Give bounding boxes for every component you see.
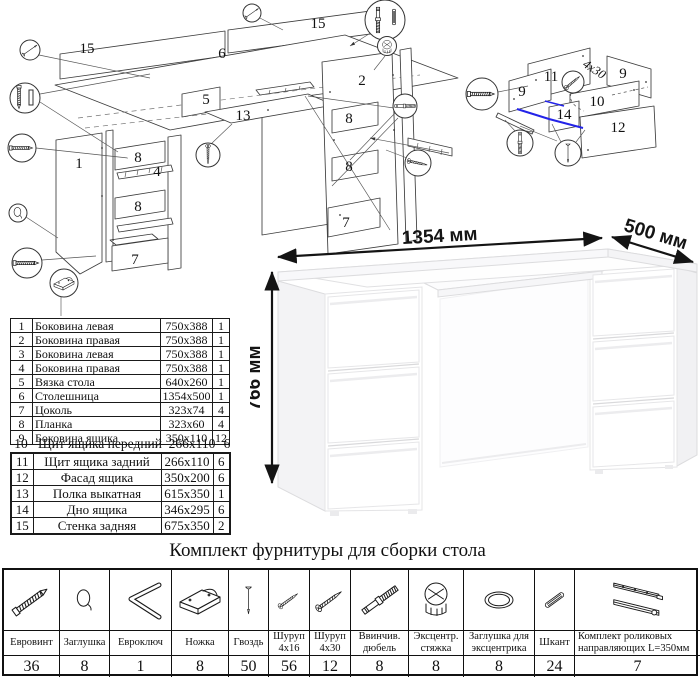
part-label: 6: [218, 46, 226, 62]
part-qty: 1: [213, 375, 230, 389]
hardware-name: Шкант: [535, 630, 575, 655]
hardware-icon-cell: [172, 570, 229, 630]
hardware-icon-cell: [4, 570, 60, 630]
parts-table-row: 3Боковина левая750x3881: [11, 347, 230, 361]
part-size: 323x74: [161, 403, 213, 417]
hardware-kit-title: Комплект фурнитуры для сборки стола: [0, 540, 655, 562]
parts-table-upper-body: 1Боковина левая750x38812Боковина правая7…: [11, 319, 230, 445]
part-label: 9: [518, 84, 526, 100]
part-qty: 6: [213, 502, 230, 518]
parts-table-row: 5Вязка стола640x2601: [11, 375, 230, 389]
hardware-name: Ввинчив. дюбель: [351, 630, 409, 655]
part-name: Планка: [33, 417, 161, 431]
part-label: 9: [619, 66, 627, 82]
drawer-slide-rail: [117, 218, 173, 232]
part-num: 14: [11, 502, 33, 518]
part-qty: 1: [213, 486, 230, 502]
cap-icon: [60, 573, 109, 627]
nail-icon: [229, 573, 268, 627]
part-label: 7: [131, 252, 139, 268]
part-size: 266x110: [166, 437, 218, 451]
hardware-icon-cell: [575, 570, 700, 630]
part-qty: 4: [213, 417, 230, 431]
hardware-kit-table: Евровинт36Заглушка8Евроключ1Ножка8Гвоздь…: [2, 568, 698, 676]
desk-drawing: [278, 249, 697, 516]
hardware-qty: 7: [575, 655, 700, 677]
part-size: 346x295: [161, 502, 213, 518]
hardware-name: Заглушка: [60, 630, 110, 655]
part-label: 4: [153, 164, 161, 180]
part-num: 4: [11, 361, 33, 375]
part-size: 350x200: [161, 470, 213, 486]
hardware-qty: 12: [310, 655, 351, 677]
part-label: 8: [345, 111, 353, 127]
hardware-qty: 8: [409, 655, 464, 677]
part-label: 1: [75, 156, 83, 172]
part-label: 14: [557, 107, 573, 123]
hardware-name: Эксцентр. стяжка: [409, 630, 464, 655]
part-size: 323x60: [161, 417, 213, 431]
part-qty: 1: [213, 389, 230, 403]
part-qty: 1: [213, 361, 230, 375]
part-num: 15: [11, 518, 33, 535]
parts-table-row: 2Боковина правая750x3881: [11, 333, 230, 347]
cam-icon: [409, 573, 463, 627]
hardware-icon-cell: [60, 570, 110, 630]
part-name: Боковина правая: [33, 333, 161, 347]
part-label: 8: [134, 150, 142, 166]
part-num: 1: [11, 319, 33, 333]
part-name: Боковина правая: [33, 361, 161, 375]
hardware-qty: 8: [351, 655, 409, 677]
width-dimension-label: 1354 мм: [401, 224, 478, 249]
hexkey-icon: [114, 573, 168, 627]
shkant-icon: [535, 573, 574, 627]
hardware-icon-cell: [269, 570, 310, 630]
part-label: 2: [358, 73, 366, 89]
hardware-icon-cell: [310, 570, 351, 630]
right-pedestal-drawers: [593, 269, 674, 467]
part-label: 12: [611, 120, 626, 136]
parts-table-row: 13Полка выкатная615x3501: [11, 486, 230, 502]
foot-icon: [173, 573, 227, 627]
part-qty: 1: [213, 333, 230, 347]
part-size: 675x350: [161, 518, 213, 535]
hardware-name: Гвоздь: [229, 630, 269, 655]
part-num: 6: [11, 389, 33, 403]
part-name: Щит ящика передний: [34, 437, 166, 451]
slides-icon: [611, 573, 665, 627]
part-name: Щит ящика задний: [33, 453, 161, 470]
part-label: 13: [236, 108, 251, 124]
hardware-name: Шуруп 4x16: [269, 630, 310, 655]
parts-table-row: 7Цоколь323x744: [11, 403, 230, 417]
hardware-qty: 50: [229, 655, 269, 677]
part-name: Вязка стола: [33, 375, 161, 389]
part-qty: 6: [218, 437, 236, 451]
part-num: 5: [11, 375, 33, 389]
part-name: Фасад ящика: [33, 470, 161, 486]
parts-table-upper: 1Боковина левая750x38812Боковина правая7…: [10, 318, 230, 445]
part-number: 10: [8, 437, 34, 451]
part-qty: 1: [213, 347, 230, 361]
parts-table-row: 11Щит ящика задний266x1106: [11, 453, 230, 470]
hardware-qty: 24: [535, 655, 575, 677]
height-dimension-label: 766 мм: [250, 345, 265, 410]
hardware-icon-cell: [409, 570, 464, 630]
parts-table-lower-body: 11Щит ящика задний266x110612Фасад ящика3…: [11, 453, 230, 534]
parts-table-row: 12Фасад ящика350x2006: [11, 470, 230, 486]
hardware-icon-cell: [229, 570, 269, 630]
part-size: 750x388: [161, 319, 213, 333]
part-size: 750x388: [161, 333, 213, 347]
part-num: 7: [11, 403, 33, 417]
hardware-qty: 8: [60, 655, 110, 677]
part-num: 13: [11, 486, 33, 502]
hardware-qty: 36: [4, 655, 60, 677]
hardware-qty: 8: [464, 655, 535, 677]
parts-table-lower: 11Щит ящика задний266x110612Фасад ящика3…: [10, 452, 231, 535]
part-name: Боковина левая: [33, 347, 161, 361]
part-num: 11: [11, 453, 33, 470]
part-label: 10: [590, 94, 605, 110]
part-qty: 1: [213, 319, 230, 333]
hardware-qty: 56: [269, 655, 310, 677]
callout-euroscrew-dowel-icon: [10, 83, 40, 113]
dowel-screw-icon: [353, 573, 407, 627]
cam-cap-icon: [472, 573, 526, 627]
hardware-name: Комплект роликовых направляющих L=350мм: [575, 630, 700, 655]
callout-dowelscrew-shkant-icon: [365, 0, 405, 40]
parts-table-row: 4Боковина правая750x3881: [11, 361, 230, 375]
euroscrew-icon: [5, 573, 59, 627]
part-label: 15: [311, 16, 326, 32]
part-size: 750x388: [161, 361, 213, 375]
parts-table-row: 15Стенка задняя675x3502: [11, 518, 230, 535]
part-label: 15: [80, 41, 95, 57]
hardware-qty: 1: [110, 655, 172, 677]
parts-table-row: 8Планка323x604: [11, 417, 230, 431]
hardware-name: Заглушка для эксцентрика: [464, 630, 535, 655]
part-name: Полка выкатная: [33, 486, 161, 502]
drawer-assembly-diagram: 4x30 11 9 9 10 14 12: [466, 48, 656, 166]
hardware-icon-cell: [535, 570, 575, 630]
part-label: 11: [544, 69, 558, 85]
part-name: Стенка задняя: [33, 518, 161, 535]
hardware-name: Евроключ: [110, 630, 172, 655]
part-qty: 2: [213, 518, 230, 535]
parts-row-10: 10 Щит ящика передний 266x110 6: [8, 436, 236, 452]
part-name: Столешница: [33, 389, 161, 403]
assembly-instruction-sheet: 15 6 15 5 13 1 8 4 8 7 2 8 8 7 4x: [0, 0, 700, 677]
part-num: 12: [11, 470, 33, 486]
part-size: 640x260: [161, 375, 213, 389]
parts-table-row: 14Дно ящика346x2956: [11, 502, 230, 518]
left-pedestal-drawers: [328, 290, 419, 509]
part-label: 8: [345, 159, 353, 175]
part-qty: 6: [213, 470, 230, 486]
hardware-name: Евровинт: [4, 630, 60, 655]
screw-small-icon: [269, 573, 309, 627]
side-panel-4: [168, 135, 181, 270]
part-name: Цоколь: [33, 403, 161, 417]
hardware-qty: 8: [172, 655, 229, 677]
part-name: Боковина левая: [33, 319, 161, 333]
hardware-icon-cell: [351, 570, 409, 630]
hardware-icon-cell: [464, 570, 535, 630]
part-size: 615x350: [161, 486, 213, 502]
hardware-name: Шуруп 4x30: [310, 630, 351, 655]
part-qty: 4: [213, 403, 230, 417]
screw-large-icon: [310, 573, 350, 627]
part-label: 5: [202, 92, 210, 108]
parts-table-row: 1Боковина левая750x3881: [11, 319, 230, 333]
part-num: 8: [11, 417, 33, 431]
part-size: 750x388: [161, 347, 213, 361]
part-size: 266x110: [161, 453, 213, 470]
desk-dimension-drawing: 1354 мм 500 мм 766 мм: [250, 215, 700, 545]
part-num: 2: [11, 333, 33, 347]
hardware-icon-cell: [110, 570, 172, 630]
hardware-name: Ножка: [172, 630, 229, 655]
depth-dimension-label: 500 мм: [621, 215, 689, 254]
part-size: 1354x500: [161, 389, 213, 403]
part-name: Дно ящика: [33, 502, 161, 518]
part-qty: 6: [213, 453, 230, 470]
part-label: 8: [134, 199, 142, 215]
parts-table-row: 6Столешница1354x5001: [11, 389, 230, 403]
part-num: 3: [11, 347, 33, 361]
